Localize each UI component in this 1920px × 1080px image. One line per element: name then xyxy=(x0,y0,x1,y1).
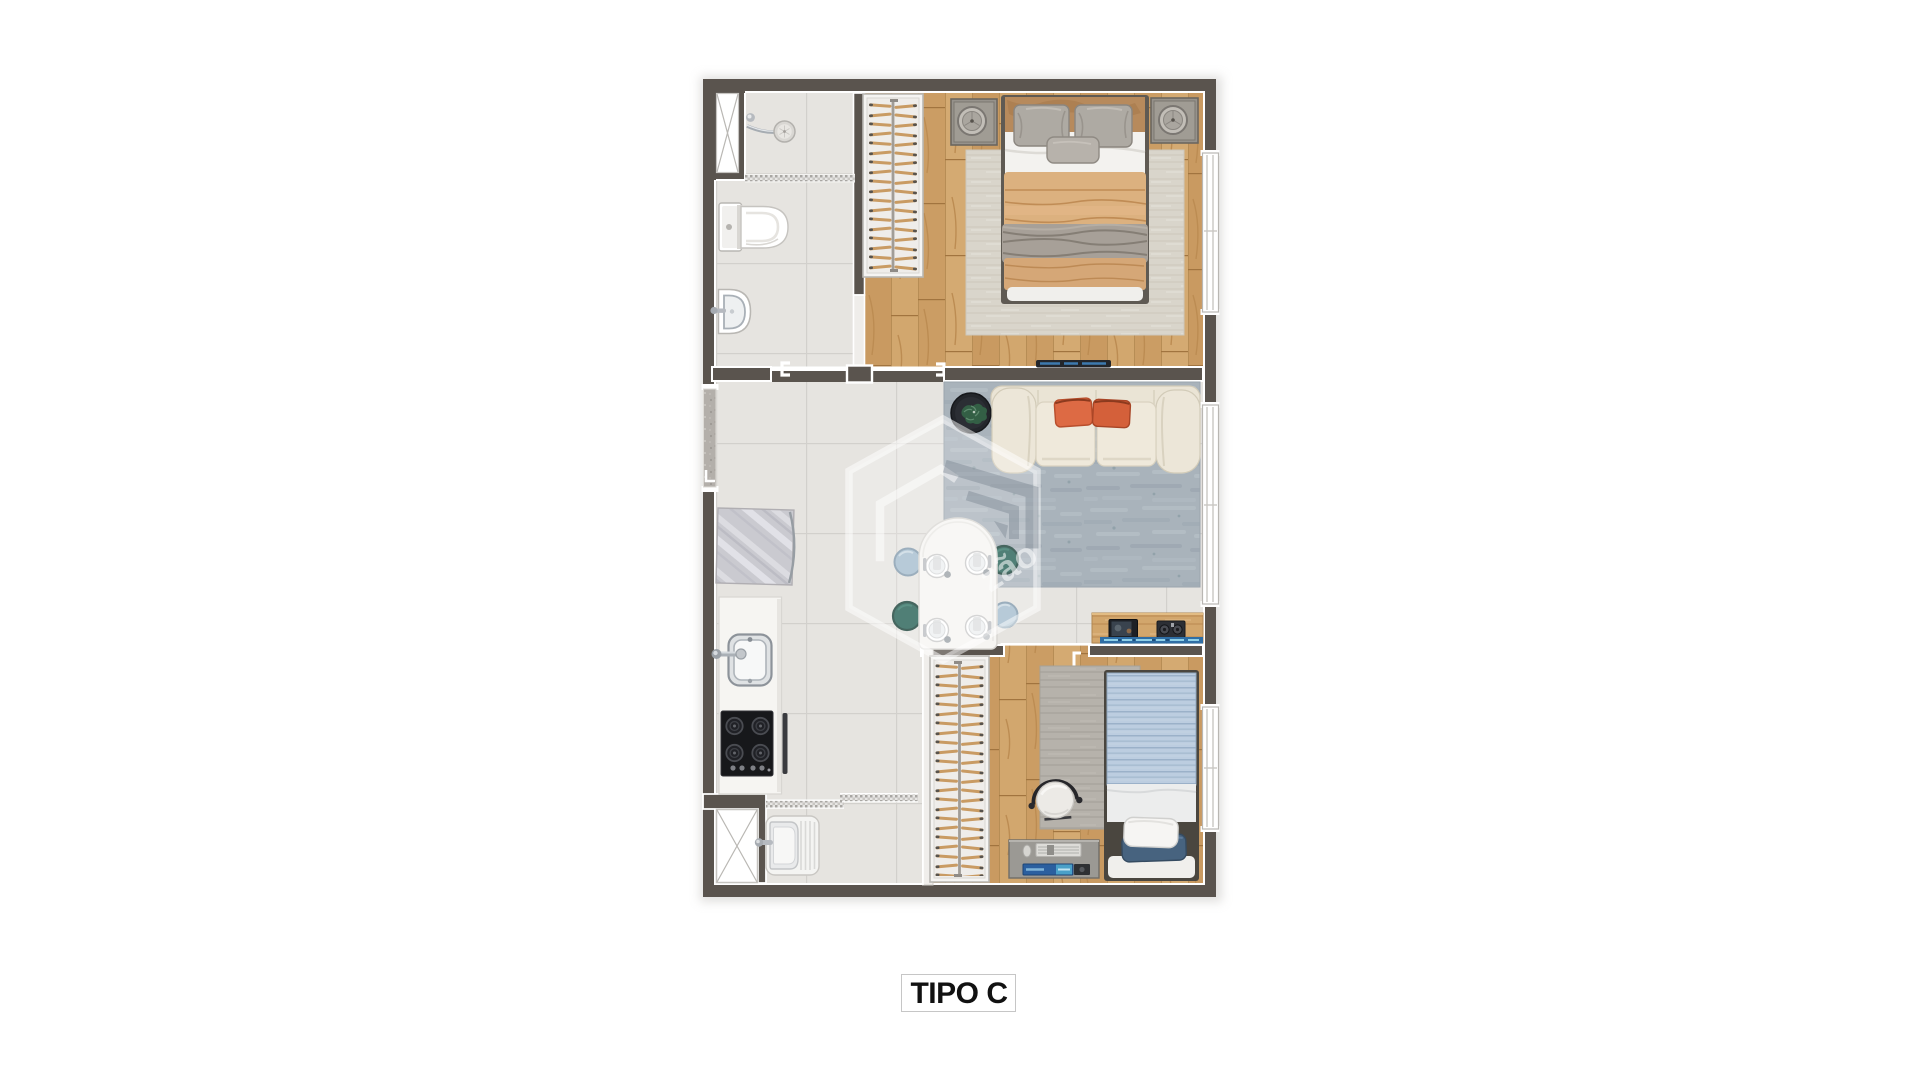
svg-text:TIPO C: TIPO C xyxy=(910,977,1007,1010)
